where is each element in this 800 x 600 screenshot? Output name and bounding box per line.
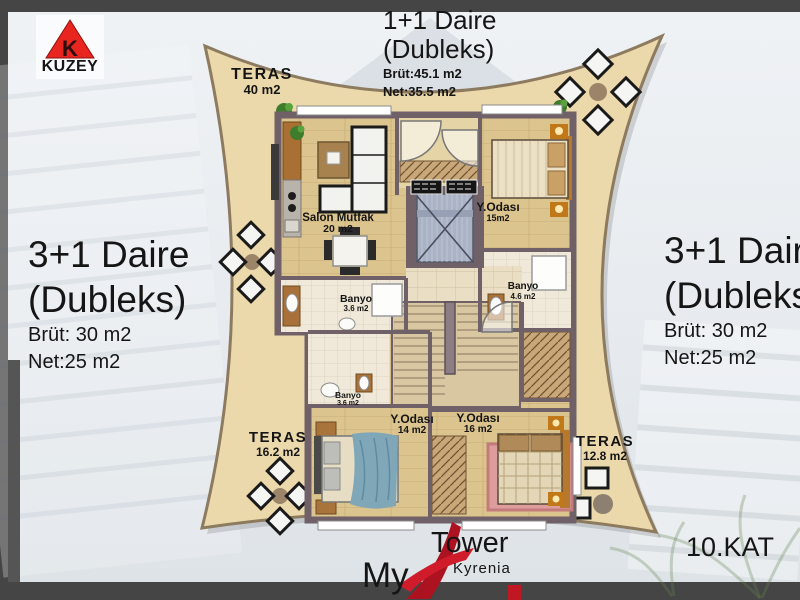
unit-title: 1+1 Daire (383, 6, 593, 35)
room-label-bedroom16: Y.Odası 16 m2 (438, 412, 518, 436)
terrace-label-bottom-left: TERAS 16.2 m2 (238, 430, 318, 459)
window-left (271, 144, 279, 200)
floor-number-label: 10.KAT (686, 532, 774, 563)
frame-edge-left (8, 360, 20, 582)
unit-title: 3+1 Daire (28, 232, 248, 277)
north-compass-logo: K KUZEY (36, 15, 104, 79)
blue-blanket (350, 432, 398, 508)
wardrobe-bedroom16 (432, 436, 466, 514)
elevator-shaft (406, 186, 484, 268)
bed-bedroom15 (492, 136, 572, 200)
terrace-label-top: TERAS 40 m2 (220, 66, 304, 97)
wardrobe-right (522, 332, 570, 398)
logo-accent-square (508, 585, 521, 600)
unit-brut-area: Brüt:45.1 m2 (383, 66, 593, 82)
room-label-bedroom15: Y.Odası 15m2 (468, 201, 528, 224)
brand-word-tower: Tower (431, 527, 508, 560)
unit-subtitle: (Dubleks) (28, 277, 248, 322)
unit-info-right: 3+1 Daire (Dubleks) Brüt: 30 m2 Net:25 m… (664, 228, 800, 372)
building-plan (271, 105, 581, 530)
unit-info-top: 1+1 Daire (Dubleks) Brüt:45.1 m2 Net:35.… (383, 6, 593, 100)
unit-brut-area: Brüt: 30 m2 (28, 322, 248, 349)
compass-label: KUZEY (36, 58, 104, 76)
unit-title: 3+1 Daire (664, 228, 800, 273)
unit-brut-area: Brüt: 30 m2 (664, 318, 800, 345)
brand-word-my: My (362, 556, 409, 596)
room-label-bath-right: Banyo 4.6 m2 (498, 282, 548, 301)
north-triangle-icon: K (42, 18, 98, 60)
unit-net-area: Net:25 m2 (664, 345, 800, 372)
floorplan-page: K KUZEY 1+1 Daire (Dubleks) Brüt:45.1 m2… (0, 0, 800, 600)
unit-net-area: Net:25 m2 (28, 349, 248, 376)
brand-word-city: Kyrenia (453, 560, 511, 577)
unit-subtitle: (Dubleks) (664, 273, 800, 318)
unit-net-area: Net:35.5 m2 (383, 84, 593, 100)
room-label-salon: Salon Mutfak 20 m2 (288, 212, 388, 236)
svg-text:K: K (62, 36, 78, 60)
room-label-bath-lower: Banyo 3.6 m2 (324, 391, 372, 408)
room-label-bath-upper: Banyo 3.6 m2 (326, 294, 386, 314)
terrace-label-bottom-right: TERAS 12.8 m2 (566, 434, 644, 463)
unit-subtitle: (Dubleks) (383, 35, 593, 64)
unit-info-left: 3+1 Daire (Dubleks) Brüt: 30 m2 Net:25 m… (28, 232, 248, 376)
